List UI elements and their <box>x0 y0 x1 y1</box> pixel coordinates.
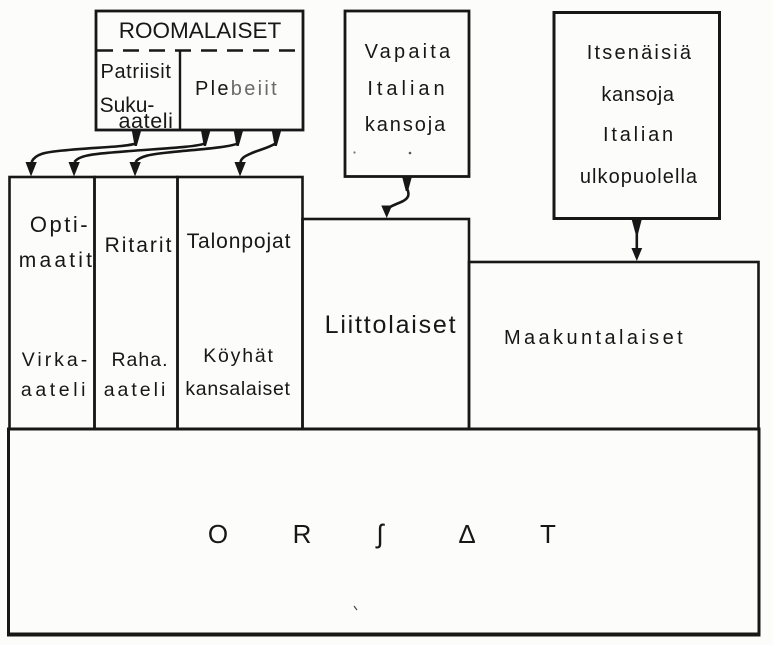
svg-text:Maakuntalaiset: Maakuntalaiset <box>504 327 686 349</box>
svg-text:Ritarit: Ritarit <box>105 234 174 257</box>
svg-text:ROOMALAISET: ROOMALAISET <box>119 18 282 43</box>
svg-text:Raha.: Raha. <box>111 349 168 371</box>
svg-text:Italian: Italian <box>603 124 676 146</box>
svg-text:Köyhät: Köyhät <box>203 345 275 367</box>
svg-text:Virka-: Virka- <box>22 349 91 371</box>
svg-text:Plebeiit: Plebeiit <box>195 78 279 100</box>
svg-text:aateli: aateli <box>21 379 89 401</box>
svg-text:O: O <box>208 519 228 549</box>
svg-text:Patriisit: Patriisit <box>101 61 172 83</box>
svg-text:aateli: aateli <box>104 379 169 401</box>
svg-text:Vapaita: Vapaita <box>365 41 454 63</box>
svg-text:Talonpojat: Talonpojat <box>187 230 292 253</box>
svg-text:Liittolaiset: Liittolaiset <box>325 311 458 339</box>
svg-text:aateli: aateli <box>119 109 174 133</box>
svg-text:ulkopuolella: ulkopuolella <box>580 166 698 188</box>
svg-text:Itsenäisiä: Itsenäisiä <box>587 42 694 64</box>
svg-text:Δ: Δ <box>458 519 475 549</box>
svg-text:kansalaiset: kansalaiset <box>185 378 290 400</box>
svg-text:maatit: maatit <box>19 249 95 272</box>
svg-text:Opti-: Opti- <box>30 212 90 237</box>
svg-text:Italian: Italian <box>367 78 448 100</box>
svg-text:kansoja: kansoja <box>365 114 447 136</box>
svg-text:R: R <box>293 519 312 549</box>
svg-text:T: T <box>540 519 556 549</box>
svg-text:kansoja: kansoja <box>601 84 674 106</box>
